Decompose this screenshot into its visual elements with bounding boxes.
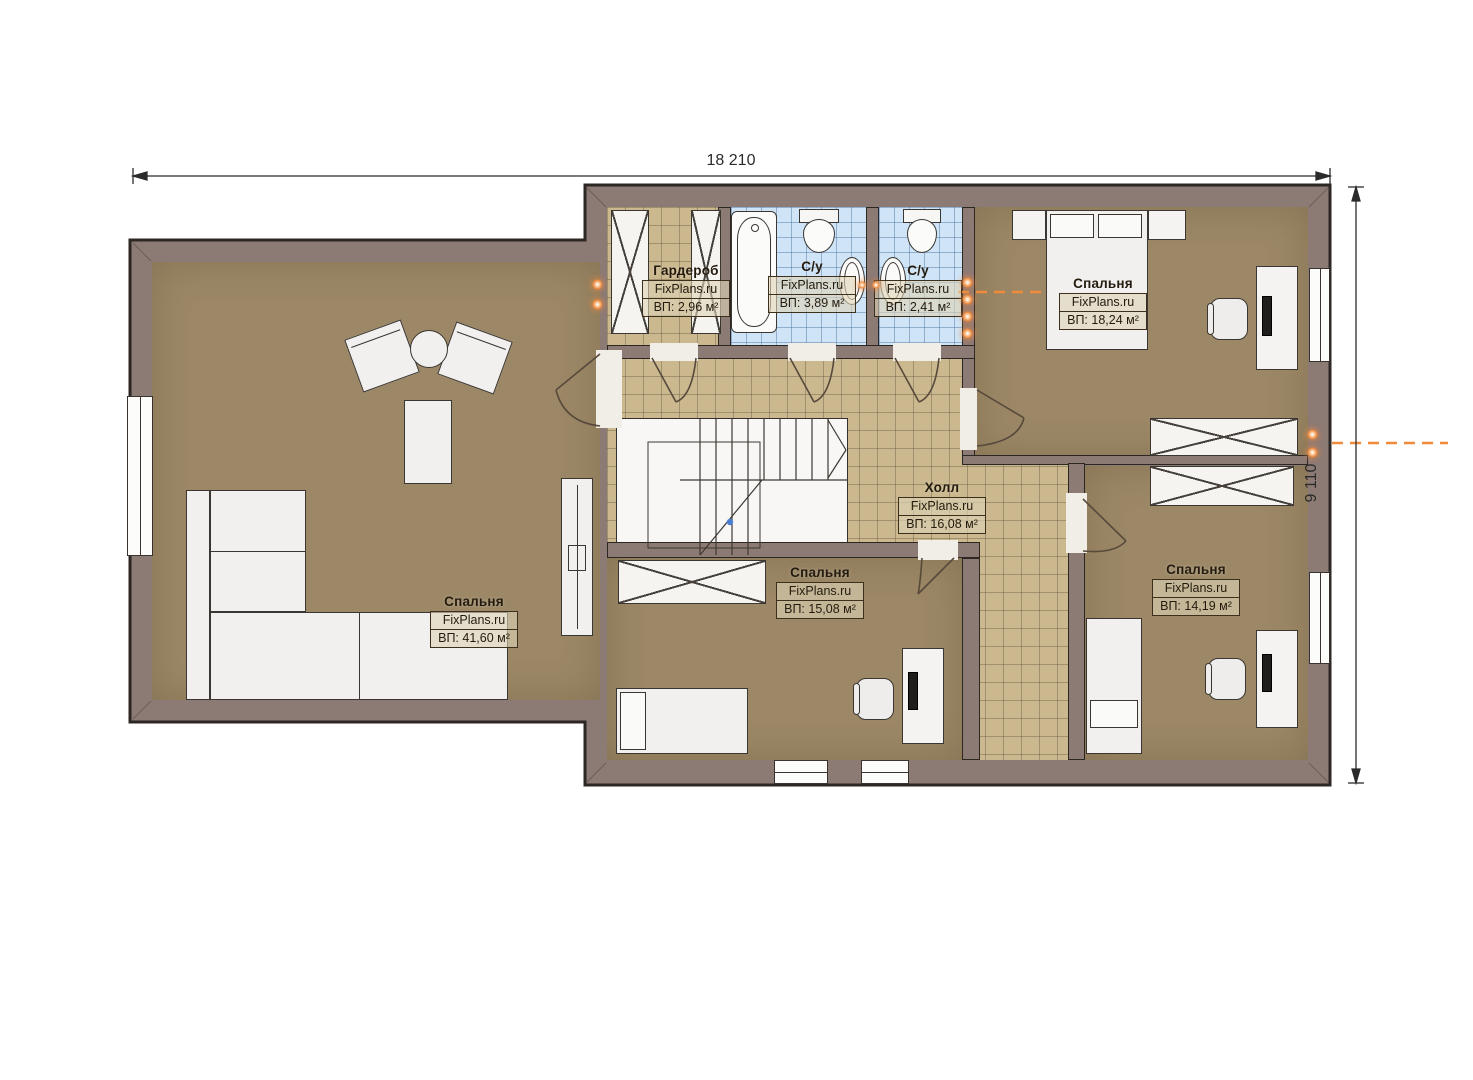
nightstand: [1012, 210, 1046, 240]
computer-monitor: [1262, 654, 1272, 692]
wall-bedroom-mid-corridor: [962, 558, 980, 760]
room-name: Спальня: [1038, 276, 1168, 291]
watermark: FixPlans.ru: [1153, 580, 1239, 597]
toilet: [799, 209, 839, 253]
wall-light: [962, 277, 973, 288]
room-name: Спальня: [1131, 562, 1261, 577]
round-table: [410, 330, 448, 368]
room-name: С/у: [853, 263, 983, 278]
room-label-bedroom-top: Спальня FixPlans.ru ВП: 18,24 м²: [1038, 276, 1168, 330]
sofa-seat: [210, 490, 306, 612]
room-name: Спальня: [409, 594, 539, 609]
wardrobe-cabinet: [1150, 418, 1298, 456]
room-label-bedroom-left: Спальня FixPlans.ru ВП: 41,60 м²: [409, 594, 539, 648]
sofa-back: [186, 490, 210, 700]
room-label-bath2: С/у FixPlans.ru ВП: 2,41 м²: [853, 263, 983, 317]
office-chair: [1208, 658, 1246, 700]
computer-monitor: [908, 672, 918, 710]
office-chair: [856, 678, 894, 720]
pillow: [1090, 700, 1138, 728]
window-bottom-2: [861, 760, 909, 784]
room-area: ВП: 41,60 м²: [431, 629, 517, 647]
stairwell: [616, 418, 848, 556]
watermark: FixPlans.ru: [431, 612, 517, 629]
pillow: [620, 692, 646, 750]
wall-light: [592, 299, 603, 310]
wall-light: [962, 311, 973, 322]
pillow: [1098, 214, 1142, 238]
door-opening-bedroom-left: [596, 350, 622, 428]
watermark: FixPlans.ru: [769, 277, 855, 294]
room-area: ВП: 15,08 м²: [777, 600, 863, 618]
room-name: Холл: [877, 480, 1007, 495]
wall-light: [1307, 447, 1318, 458]
door-opening-bedroom-right: [1066, 493, 1087, 553]
room-info-box: FixPlans.ru ВП: 16,08 м²: [898, 497, 986, 534]
wardrobe-cabinet: [618, 560, 766, 604]
single-bed: [1086, 618, 1142, 754]
pillow: [1050, 214, 1094, 238]
wall-bedroom-top-south: [962, 455, 1308, 465]
office-chair: [1210, 298, 1248, 340]
watermark: FixPlans.ru: [875, 281, 961, 298]
room-label-wardrobe: Гардероб FixPlans.ru ВП: 2,96 м²: [621, 263, 751, 317]
window-right-bottom: [1309, 572, 1330, 664]
room-label-bedroom-mid: Спальня FixPlans.ru ВП: 15,08 м²: [755, 565, 885, 619]
room-area: ВП: 14,19 м²: [1153, 597, 1239, 615]
room-label-hall: Холл FixPlans.ru ВП: 16,08 м²: [877, 480, 1007, 534]
wall-light: [1307, 429, 1318, 440]
room-info-box: FixPlans.ru ВП: 3,89 м²: [768, 276, 856, 313]
room-info-box: FixPlans.ru ВП: 14,19 м²: [1152, 579, 1240, 616]
room-info-box: FixPlans.ru ВП: 41,60 м²: [430, 611, 518, 648]
window-right-top: [1309, 268, 1330, 362]
watermark: FixPlans.ru: [1060, 294, 1146, 311]
wall-light: [592, 279, 603, 290]
wall-light: [962, 328, 973, 339]
room-info-box: FixPlans.ru ВП: 2,96 м²: [642, 280, 730, 317]
dimension-width: 18 210: [681, 152, 781, 170]
window-bottom-1: [774, 760, 828, 784]
room-info-box: FixPlans.ru ВП: 18,24 м²: [1059, 293, 1147, 330]
room-info-box: FixPlans.ru ВП: 15,08 м²: [776, 582, 864, 619]
wall-light: [872, 281, 880, 289]
wardrobe-cabinet: [1150, 466, 1294, 506]
door-opening-wardrobe: [650, 343, 698, 361]
toilet: [903, 209, 941, 253]
wall-light: [962, 294, 973, 305]
room-name: Гардероб: [621, 263, 751, 278]
floor-plan: Гардероб FixPlans.ru ВП: 2,96 м² С/у Fix…: [0, 0, 1473, 1080]
wall-light: [858, 281, 866, 289]
room-area: ВП: 2,96 м²: [643, 298, 729, 316]
coffee-table: [404, 400, 452, 484]
room-area: ВП: 2,41 м²: [875, 298, 961, 316]
dresser: [561, 478, 593, 636]
window-left-wall: [127, 396, 153, 556]
watermark: FixPlans.ru: [899, 498, 985, 515]
computer-monitor: [1262, 296, 1272, 336]
door-opening-bath2: [893, 343, 941, 361]
room-label-bedroom-right: Спальня FixPlans.ru ВП: 14,19 м²: [1131, 562, 1261, 616]
door-opening-bedroom-mid: [918, 540, 958, 560]
room-area: ВП: 18,24 м²: [1060, 311, 1146, 329]
room-name: Спальня: [755, 565, 885, 580]
watermark: FixPlans.ru: [643, 281, 729, 298]
watermark: FixPlans.ru: [777, 583, 863, 600]
nightstand: [1148, 210, 1186, 240]
door-opening-bedroom-top: [960, 388, 977, 450]
door-opening-bath1: [788, 343, 836, 361]
room-info-box: FixPlans.ru ВП: 2,41 м²: [874, 280, 962, 317]
room-area: ВП: 3,89 м²: [769, 294, 855, 312]
room-area: ВП: 16,08 м²: [899, 515, 985, 533]
